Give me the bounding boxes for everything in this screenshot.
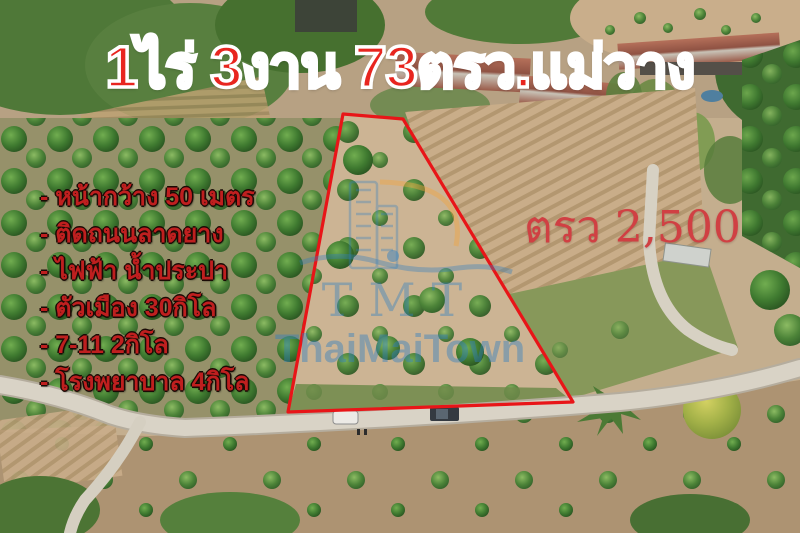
feature-hospital-distance: - โรงพยาบาล 4กิโล (40, 369, 255, 395)
land-listing-photo: TMT ThaiMaiTown 1ไร่ 3งาน 73ตรว.แม่วาง -… (0, 0, 800, 533)
feature-frontage: - หน้ากว้าง 50 เมตร (40, 184, 255, 210)
feature-list: - หน้ากว้าง 50 เมตร - ติดถนนลาดยาง - ไฟฟ… (40, 184, 255, 406)
feature-utilities: - ไฟฟ้า น้ำประปา (40, 258, 255, 284)
watermark-dot (387, 250, 399, 262)
listing-title: 1ไร่ 3งาน 73ตรว.แม่วาง (0, 20, 800, 113)
watermark-wave (300, 256, 512, 272)
watermark-initials: TMT (322, 273, 478, 327)
feature-road: - ติดถนนลาดยาง (40, 221, 255, 247)
price-per-sqwah: ตรว 2,500 (524, 192, 741, 262)
feature-city-distance: - ตัวเมือง 30กิโล (40, 295, 255, 321)
feature-711-distance: - 7-11 2กิโล (40, 332, 255, 358)
watermark-name: ThaiMaiTown (275, 327, 525, 371)
